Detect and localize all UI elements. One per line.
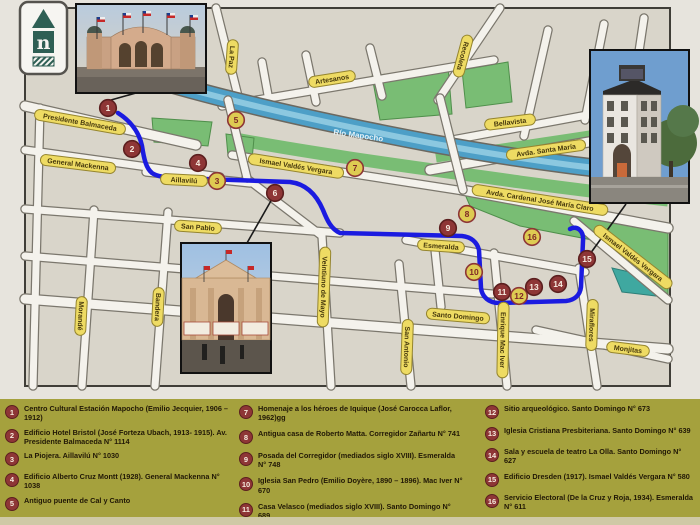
- street-label: Morandé: [74, 296, 87, 335]
- map-marker-12: 12: [511, 288, 528, 305]
- map-marker-14: 14: [550, 276, 567, 293]
- legend: 1Centro Cultural Estación Mapocho (Emili…: [0, 399, 700, 517]
- svg-text:11: 11: [498, 287, 507, 297]
- legend-item-number: 3: [5, 452, 19, 466]
- legend-item-text: Posada del Corregidor (mediados siglo XV…: [258, 451, 464, 469]
- legend-item-text: Edificio Dresden (1917). Ismael Valdés V…: [504, 472, 690, 481]
- legend-item-text: Iglesia Cristiana Presbiteriana. Santo D…: [504, 426, 691, 435]
- map-marker-1: 1: [100, 100, 117, 117]
- legend-item-text: Antiguo puente de Cal y Canto: [24, 496, 130, 505]
- map-marker-9: 9: [440, 220, 457, 237]
- legend-item-text: Servicio Electoral (De la Cruz y Roja, 1…: [504, 493, 694, 511]
- svg-text:12: 12: [514, 291, 524, 301]
- svg-text:Enrique Mac Iver: Enrique Mac Iver: [498, 312, 506, 368]
- svg-text:Aillavilú: Aillavilú: [170, 177, 197, 185]
- svg-text:5: 5: [234, 115, 239, 125]
- bottom-strip: [0, 517, 700, 525]
- map-marker-10: 10: [466, 264, 483, 281]
- legend-item-5: 5Antiguo puente de Cal y Canto: [5, 496, 239, 511]
- svg-text:2: 2: [130, 144, 135, 154]
- svg-text:16: 16: [527, 232, 537, 242]
- street-label: San Antonio: [401, 319, 414, 374]
- map-marker-2: 2: [124, 141, 141, 158]
- legend-item-number: 7: [239, 405, 253, 419]
- map-marker-7: 7: [347, 160, 364, 177]
- svg-text:9: 9: [446, 223, 451, 233]
- legend-column-2: 7Homenaje a los héroes de Iquique (José …: [239, 404, 485, 515]
- legend-item-number: 1: [5, 405, 19, 419]
- map-marker-6: 6: [267, 185, 284, 202]
- svg-text:Miraflores: Miraflores: [587, 308, 595, 342]
- street-label: La Paz: [225, 39, 238, 74]
- logo: n: [20, 2, 67, 74]
- legend-item-text: Antigua casa de Roberto Matta. Corregido…: [258, 429, 460, 438]
- legend-item-text: Centro Cultural Estación Mapocho (Emilio…: [24, 404, 230, 422]
- svg-text:6: 6: [273, 188, 278, 198]
- legend-item-number: 4: [5, 473, 19, 487]
- legend-item-number: 11: [239, 503, 253, 517]
- legend-item-14: 14Sala y escuela de teatro La Olla. Sant…: [485, 447, 694, 465]
- street-label: Veintiuno de Mayo: [317, 247, 331, 327]
- legend-item-4: 4Edificio Alberto Cruz Montt (1928). Gen…: [5, 472, 239, 490]
- map-marker-13: 13: [526, 279, 543, 296]
- map-marker-3: 3: [209, 173, 226, 190]
- legend-item-number: 14: [485, 448, 499, 462]
- legend-item-9: 9Posada del Corregidor (mediados siglo X…: [239, 451, 485, 469]
- svg-text:Bandera: Bandera: [153, 293, 161, 321]
- street-label: Aillavilú: [160, 173, 207, 186]
- legend-item-1: 1Centro Cultural Estación Mapocho (Emili…: [5, 404, 239, 422]
- legend-item-13: 13Iglesia Cristiana Presbiteriana. Santo…: [485, 426, 694, 441]
- legend-item-number: 13: [485, 427, 499, 441]
- legend-item-16: 16Servicio Electoral (De la Cruz y Roja,…: [485, 493, 694, 511]
- map-poster: Río Mapocho Presidente BalmacedaGeneral …: [0, 0, 700, 525]
- svg-text:8: 8: [465, 209, 470, 219]
- legend-item-2: 2Edificio Hotel Bristol (José Forteza Ub…: [5, 428, 239, 446]
- svg-text:13: 13: [529, 282, 539, 292]
- legend-item-number: 5: [5, 497, 19, 511]
- legend-item-number: 15: [485, 473, 499, 487]
- svg-text:14: 14: [553, 279, 563, 289]
- street-label: Miraflores: [586, 299, 599, 350]
- legend-column-3: 12Sitio arqueológico. Santo Domingo N° 6…: [485, 404, 694, 515]
- city-map: Río Mapocho Presidente BalmacedaGeneral …: [0, 0, 700, 399]
- map-marker-5: 5: [228, 112, 245, 129]
- map-marker-8: 8: [459, 206, 476, 223]
- legend-item-15: 15Edificio Dresden (1917). Ismael Valdés…: [485, 472, 694, 487]
- svg-text:3: 3: [215, 176, 220, 186]
- street-label: Enrique Mac Iver: [497, 302, 509, 378]
- legend-column-1: 1Centro Cultural Estación Mapocho (Emili…: [5, 404, 239, 515]
- legend-item-7: 7Homenaje a los héroes de Iquique (José …: [239, 404, 485, 422]
- legend-item-text: Edificio Hotel Bristol (José Forteza Uba…: [24, 428, 230, 446]
- legend-item-text: Homenaje a los héroes de Iquique (José C…: [258, 404, 464, 422]
- legend-item-number: 8: [239, 430, 253, 444]
- legend-item-number: 2: [5, 429, 19, 443]
- legend-item-12: 12Sitio arqueológico. Santo Domingo N° 6…: [485, 404, 694, 419]
- street-label: Bandera: [151, 287, 164, 326]
- photo-estacion-mapocho: [75, 3, 207, 94]
- svg-text:4: 4: [196, 158, 201, 168]
- svg-text:10: 10: [469, 267, 479, 277]
- legend-item-number: 10: [239, 477, 253, 491]
- legend-item-number: 16: [485, 494, 499, 508]
- legend-item-8: 8Antigua casa de Roberto Matta. Corregid…: [239, 429, 485, 444]
- legend-item-number: 12: [485, 405, 499, 419]
- svg-text:15: 15: [582, 254, 592, 264]
- legend-item-text: La Piojera. Aillavilú N° 1030: [24, 451, 119, 460]
- legend-item-number: 9: [239, 452, 253, 466]
- map-marker-11: 11: [494, 284, 511, 301]
- logo-letter: n: [37, 32, 51, 54]
- photo-edificio-dresden: [589, 49, 699, 204]
- svg-text:1: 1: [106, 103, 111, 113]
- legend-item-text: Sala y escuela de teatro La Olla. Santo …: [504, 447, 694, 465]
- map-marker-15: 15: [579, 251, 596, 268]
- legend-item-3: 3La Piojera. Aillavilú N° 1030: [5, 451, 239, 466]
- map-marker-4: 4: [190, 155, 207, 172]
- map-marker-16: 16: [524, 229, 541, 246]
- svg-text:San Antonio: San Antonio: [402, 326, 410, 367]
- legend-item-10: 10Iglesia San Pedro (Emilio Doyère, 1890…: [239, 476, 485, 494]
- legend-item-text: Sitio arqueológico. Santo Domingo N° 673: [504, 404, 650, 413]
- legend-item-text: Iglesia San Pedro (Emilio Doyère, 1890 –…: [258, 476, 464, 494]
- legend-item-text: Edificio Alberto Cruz Montt (1928). Gene…: [24, 472, 230, 490]
- photo-mercado-central: [180, 242, 272, 374]
- svg-text:7: 7: [353, 163, 358, 173]
